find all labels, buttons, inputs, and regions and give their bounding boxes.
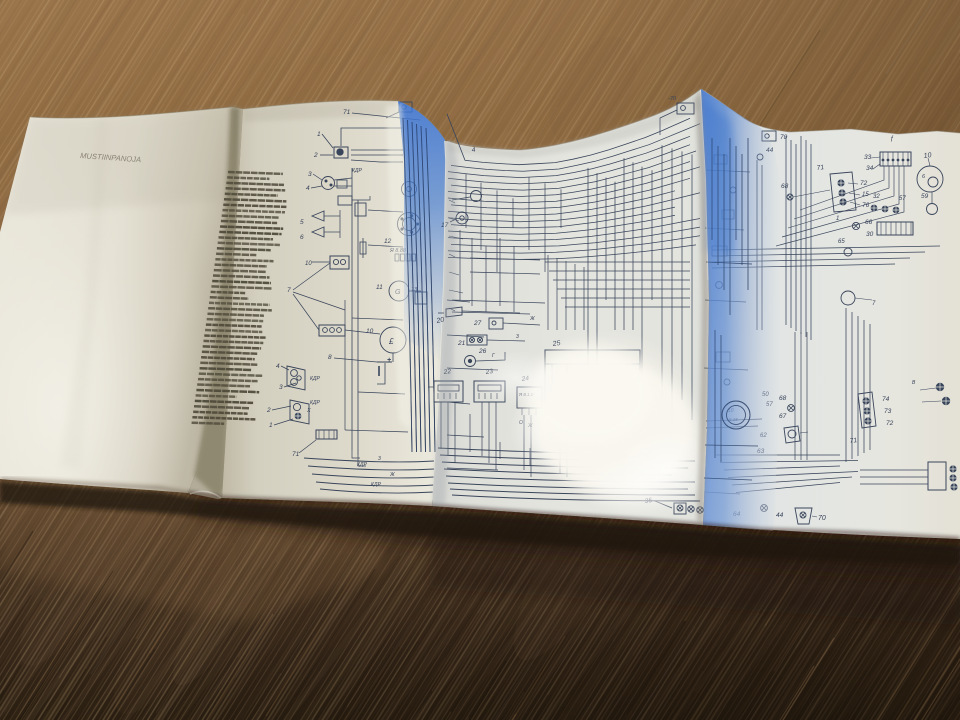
svg-text:59: 59	[921, 193, 929, 200]
svg-text:70: 70	[780, 134, 788, 141]
svg-text:71: 71	[292, 451, 300, 458]
svg-text:4: 4	[306, 185, 310, 192]
svg-text:3: 3	[279, 384, 283, 391]
svg-text:33: 33	[864, 154, 872, 161]
svg-text:68: 68	[779, 395, 787, 402]
svg-text:2: 2	[266, 407, 271, 414]
svg-text:32: 32	[873, 194, 880, 200]
svg-text:44: 44	[776, 512, 784, 519]
svg-text:7: 7	[287, 287, 291, 294]
svg-text:1: 1	[317, 131, 321, 138]
svg-text:£: £	[388, 337, 394, 346]
svg-text:ƒ: ƒ	[890, 135, 894, 142]
svg-text:27: 27	[473, 320, 482, 327]
svg-text:71: 71	[849, 437, 858, 445]
svg-text:71: 71	[343, 109, 351, 116]
svg-text:11: 11	[376, 284, 383, 291]
svg-text:4: 4	[276, 363, 280, 370]
svg-text:КДР: КДР	[352, 168, 362, 174]
svg-text:2: 2	[313, 152, 318, 159]
svg-text:3: 3	[516, 334, 519, 340]
svg-text:+: +	[387, 357, 391, 364]
svg-text:1: 1	[269, 422, 273, 429]
svg-text:10: 10	[923, 152, 932, 160]
svg-text:68: 68	[781, 183, 789, 190]
svg-text:71: 71	[816, 164, 825, 172]
svg-text:30: 30	[866, 231, 874, 238]
svg-text:10: 10	[366, 328, 374, 335]
svg-text:3: 3	[308, 171, 312, 178]
svg-text:КДР: КДР	[357, 462, 367, 468]
svg-text:Ж: Ж	[529, 316, 535, 322]
svg-text:66: 66	[865, 219, 873, 226]
svg-text:21: 21	[457, 340, 466, 347]
svg-text:8: 8	[328, 354, 332, 361]
svg-text:6: 6	[300, 234, 304, 241]
svg-text:34: 34	[866, 165, 874, 172]
svg-text:73: 73	[884, 408, 892, 415]
svg-text:5: 5	[300, 219, 304, 226]
svg-text:X: X	[306, 408, 311, 414]
svg-text:26: 26	[478, 348, 487, 355]
svg-text:3: 3	[378, 456, 381, 462]
svg-text:72: 72	[886, 420, 894, 427]
svg-text:12: 12	[384, 238, 392, 245]
svg-text:КДР: КДР	[310, 376, 320, 382]
svg-text:67: 67	[779, 413, 787, 420]
svg-text:КДР: КДР	[310, 400, 320, 406]
svg-text:70: 70	[818, 515, 826, 522]
svg-text:-70: -70	[668, 96, 677, 102]
svg-text:Ж: Ж	[389, 472, 395, 478]
svg-text:10: 10	[305, 261, 312, 267]
svg-text:65: 65	[838, 239, 845, 245]
svg-text:57: 57	[899, 196, 906, 202]
svg-text:74: 74	[882, 396, 890, 403]
svg-text:1: 1	[836, 216, 839, 222]
svg-text:КДР: КДР	[371, 482, 381, 488]
